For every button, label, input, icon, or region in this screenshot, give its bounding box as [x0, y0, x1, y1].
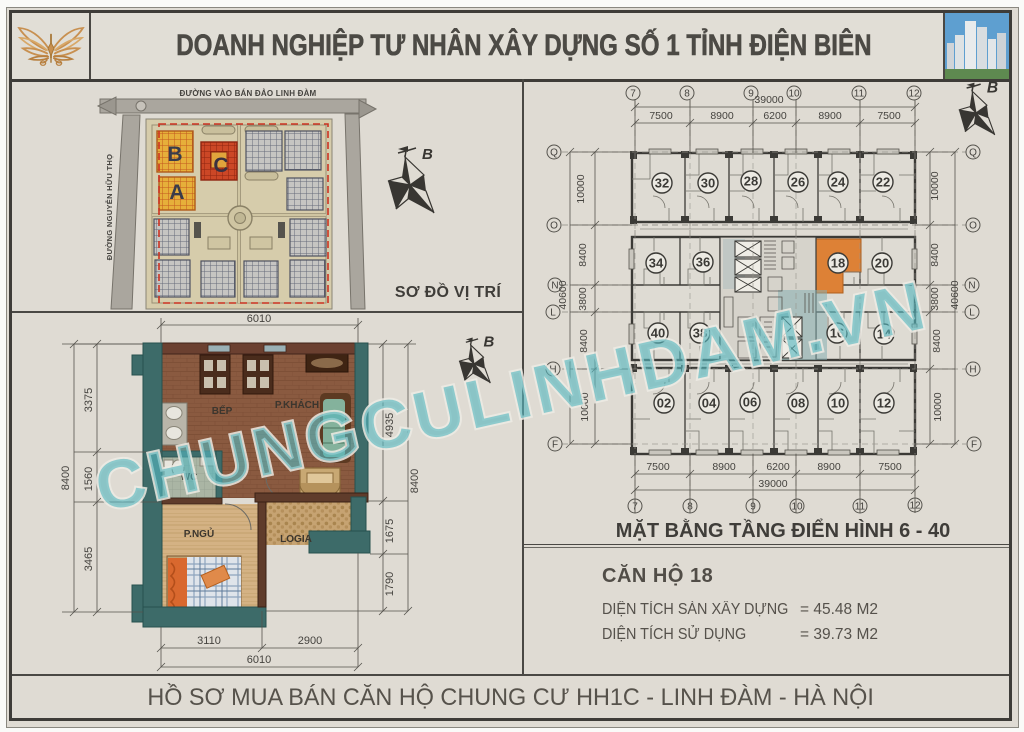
svg-text:8900: 8900 [710, 110, 734, 122]
svg-text:8: 8 [684, 89, 690, 100]
svg-text:8400: 8400 [929, 243, 941, 267]
svg-text:12: 12 [909, 501, 921, 512]
svg-text:40: 40 [651, 326, 665, 341]
svg-text:3110: 3110 [197, 635, 221, 647]
svg-text:36: 36 [696, 255, 710, 270]
svg-text:1675: 1675 [384, 519, 396, 543]
svg-text:6200: 6200 [763, 110, 787, 122]
svg-text:B: B [484, 333, 495, 350]
svg-text:39000: 39000 [758, 478, 787, 490]
svg-text:LOGIA: LOGIA [280, 534, 312, 545]
svg-text:8400: 8400 [60, 466, 72, 490]
svg-text:8400: 8400 [409, 469, 421, 493]
svg-text:10000: 10000 [575, 174, 587, 203]
svg-text:H: H [549, 365, 556, 376]
svg-text:8900: 8900 [712, 461, 736, 473]
svg-text:22: 22 [876, 175, 890, 190]
svg-text:02: 02 [657, 396, 671, 411]
svg-text:H: H [969, 365, 976, 376]
svg-text:10000: 10000 [579, 392, 591, 421]
svg-text:12: 12 [877, 396, 891, 411]
svg-text:7: 7 [630, 89, 636, 100]
svg-text:18: 18 [831, 256, 845, 271]
svg-text:7: 7 [632, 502, 638, 513]
svg-text:28: 28 [744, 174, 758, 189]
svg-text:8400: 8400 [577, 243, 589, 267]
svg-text:F: F [552, 440, 558, 451]
svg-text:4935: 4935 [384, 413, 396, 437]
svg-text:B: B [167, 143, 182, 166]
svg-text:30: 30 [701, 176, 715, 191]
svg-text:O: O [550, 221, 558, 232]
svg-text:6010: 6010 [247, 654, 271, 666]
svg-text:O: O [969, 221, 977, 232]
svg-text:1560: 1560 [83, 467, 95, 491]
svg-text:N: N [968, 281, 975, 292]
svg-text:7500: 7500 [646, 461, 670, 473]
svg-text:11: 11 [854, 89, 865, 100]
svg-text:24: 24 [831, 175, 846, 190]
svg-text:7500: 7500 [877, 110, 901, 122]
svg-text:B: B [422, 146, 433, 163]
svg-text:N: N [551, 281, 558, 292]
svg-text:MẶT BẰNG TẦNG ĐIỂN HÌNH 6 - 40: MẶT BẰNG TẦNG ĐIỂN HÌNH 6 - 40 [616, 518, 950, 542]
svg-text:38: 38 [693, 326, 707, 341]
svg-text:11: 11 [855, 502, 866, 513]
svg-text:B: B [987, 80, 998, 97]
svg-text:8: 8 [687, 502, 693, 513]
svg-text:6010: 6010 [247, 313, 271, 325]
svg-text:8900: 8900 [817, 461, 841, 473]
svg-text:39000: 39000 [754, 94, 783, 106]
svg-text:34: 34 [649, 256, 664, 271]
svg-text:40600: 40600 [557, 280, 569, 309]
svg-text:ĐƯỜNG NGUYỄN HỮU THỌ: ĐƯỜNG NGUYỄN HỮU THỌ [105, 154, 114, 261]
svg-text:7500: 7500 [878, 461, 902, 473]
svg-text:ĐƯỜNG VÀO BÁN ĐẢO LINH ĐÀM: ĐƯỜNG VÀO BÁN ĐẢO LINH ĐÀM [180, 89, 317, 98]
svg-text:26: 26 [791, 175, 805, 190]
svg-text:3375: 3375 [83, 388, 95, 412]
svg-text:1790: 1790 [384, 572, 396, 596]
svg-text:10: 10 [831, 396, 845, 411]
svg-text:3465: 3465 [83, 547, 95, 571]
svg-text:20: 20 [875, 256, 889, 271]
svg-text:3800: 3800 [577, 287, 589, 311]
svg-text:10: 10 [791, 502, 803, 513]
svg-text:08: 08 [791, 396, 805, 411]
svg-text:SƠ ĐỒ VỊ TRÍ: SƠ ĐỒ VỊ TRÍ [395, 282, 501, 301]
svg-text:04: 04 [702, 396, 717, 411]
svg-text:P.NGỦ: P.NGỦ [184, 527, 214, 540]
svg-text:14: 14 [877, 327, 892, 342]
svg-text:A: A [169, 181, 184, 204]
svg-text:P.KHÁCH: P.KHÁCH [275, 398, 319, 411]
svg-text:8900: 8900 [818, 110, 842, 122]
svg-text:40600: 40600 [949, 280, 961, 309]
svg-text:8400: 8400 [578, 329, 590, 353]
svg-text:2900: 2900 [298, 635, 322, 647]
svg-text:7500: 7500 [649, 110, 673, 122]
svg-text:32: 32 [655, 176, 669, 191]
svg-text:16: 16 [830, 326, 844, 341]
svg-text:10000: 10000 [932, 392, 944, 421]
svg-text:C: C [213, 154, 228, 177]
svg-text:Q: Q [969, 148, 977, 159]
svg-text:6200: 6200 [766, 461, 790, 473]
svg-text:9: 9 [748, 89, 754, 100]
svg-text:8400: 8400 [931, 329, 943, 353]
svg-text:9: 9 [750, 502, 756, 513]
svg-text:L: L [969, 308, 975, 319]
svg-text:BẾP: BẾP [212, 404, 233, 417]
svg-text:12: 12 [908, 89, 920, 100]
svg-text:06: 06 [743, 395, 757, 410]
svg-text:Q: Q [550, 148, 558, 159]
svg-text:F: F [971, 440, 977, 451]
svg-text:3800: 3800 [929, 287, 941, 311]
svg-text:10: 10 [788, 89, 800, 100]
svg-text:10000: 10000 [929, 171, 941, 200]
svg-text:L: L [550, 308, 556, 319]
svg-text:WC: WC [181, 472, 198, 483]
